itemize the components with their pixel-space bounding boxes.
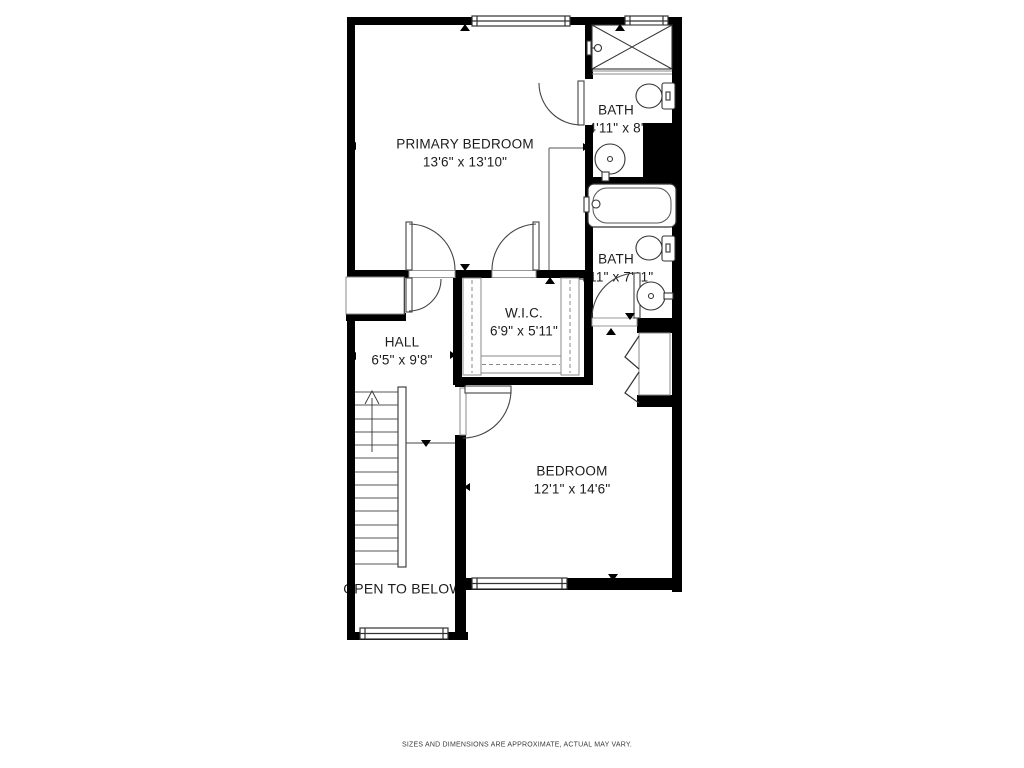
- sink-drain: [649, 294, 654, 299]
- room-name: BATH: [588, 102, 643, 120]
- wall-chase: [643, 123, 680, 177]
- bath-top-label: BATH 4'11" x 8': [588, 102, 643, 137]
- bathtub: [584, 184, 676, 227]
- primary-bedroom-label: PRIMARY BEDROOM 13'6" x 13'10": [396, 136, 534, 171]
- bifold-doors: [625, 336, 639, 403]
- threshold-bath2-door: [592, 318, 637, 326]
- closet-rod-left: [463, 278, 481, 375]
- door-swing-arc: [463, 390, 511, 438]
- floor-plan-drawing: [0, 0, 1024, 768]
- wall-hall-closet-bottom: [346, 313, 406, 321]
- marker-wall-left-hall: [349, 352, 356, 360]
- wic-label: W.I.C. 6'9" x 5'11": [490, 305, 558, 340]
- door-leaf: [406, 222, 412, 270]
- sink-bath2: [637, 282, 673, 310]
- marker-wall-right-bedroom: [672, 483, 678, 491]
- jamb-bedroom-door: [460, 388, 466, 435]
- threshold-hall-door: [409, 271, 455, 278]
- floor-plan-page: PRIMARY BEDROOM 13'6" x 13'10" BATH 4'11…: [0, 0, 1024, 768]
- room-dims: 4'11" x 8': [588, 119, 643, 137]
- wall-wic-bottom: [453, 377, 592, 385]
- window-frame: [472, 578, 567, 589]
- toilet-button: [666, 92, 670, 100]
- room-name: BEDROOM: [534, 463, 611, 481]
- wall-bath1-left-a: [585, 25, 593, 79]
- wall-mid-a: [347, 270, 409, 278]
- closet-interior: [639, 333, 670, 395]
- marker-bath2-leaf: [625, 313, 635, 320]
- hall-label: HALL 6'5" x 9'8": [371, 334, 432, 369]
- tub-outer: [588, 184, 676, 227]
- door-primary-bath: [539, 81, 584, 125]
- room-name: OPEN TO BELOW: [343, 580, 463, 598]
- toilet-tank: [662, 236, 675, 261]
- toilet-tank: [662, 83, 675, 109]
- wall-divider-stub: [455, 377, 466, 387]
- window-bedroom: [472, 578, 567, 589]
- sink-faucet: [664, 293, 673, 299]
- marker-bedroom-window: [608, 574, 618, 581]
- room-dims: 12'1" x 14'6": [534, 480, 611, 498]
- sink-drain: [608, 157, 613, 162]
- shower-x-line: [592, 25, 672, 69]
- marker-niche: [583, 143, 589, 151]
- toilet-button: [666, 244, 670, 252]
- wall-bath-divider: [585, 177, 680, 185]
- thresholds: [409, 271, 637, 436]
- window-frame: [472, 16, 570, 26]
- closet-rod-right: [561, 278, 579, 375]
- door-primary-to-hall: [406, 222, 455, 270]
- shower-x-line: [592, 25, 672, 69]
- shower: [587, 25, 672, 74]
- sink-faucet: [602, 172, 609, 181]
- wall-bath2-bottom: [637, 318, 680, 330]
- shower-valve: [587, 41, 591, 55]
- wall-bedroom-bottom: [455, 578, 680, 590]
- wall-wic-left: [453, 270, 462, 385]
- bedroom-label: BEDROOM 12'1" x 14'6": [534, 463, 611, 498]
- wall-top: [347, 17, 680, 25]
- wall-closet-bottom: [637, 395, 680, 407]
- tub-faucet: [592, 200, 600, 208]
- wall-hall-closet-right: [398, 277, 405, 317]
- door-swing-arc: [409, 279, 441, 311]
- sink-basin: [637, 282, 665, 310]
- room-dims: 6'9" x 5'11": [490, 322, 558, 340]
- room-name: BATH: [579, 251, 654, 269]
- shower-pan: [592, 25, 672, 69]
- sink-bath1: [595, 144, 625, 181]
- bath-middle-label: BATH 4'11" x 7'11": [579, 251, 654, 286]
- door-leaf: [465, 386, 511, 393]
- window-primary-bedroom: [472, 16, 570, 26]
- wall-bottom-left: [347, 632, 468, 640]
- stair-up-arrow: [365, 391, 379, 404]
- marker-bath2-door: [606, 328, 616, 335]
- room-dims: 6'5" x 9'8": [371, 351, 432, 369]
- window-frame: [625, 16, 668, 26]
- stair-railing: [398, 387, 406, 567]
- open-to-below-label: OPEN TO BELOW: [343, 580, 463, 598]
- disclaimer-text: SIZES AND DIMENSIONS ARE APPROXIMATE, AC…: [402, 742, 632, 749]
- wall-left: [347, 17, 355, 640]
- room-name: PRIMARY BEDROOM: [396, 136, 534, 154]
- door-hall-side: [406, 278, 441, 312]
- wall-bath2-left: [584, 278, 593, 385]
- door-swing-arc: [539, 83, 581, 125]
- wall-stair-divider: [455, 435, 466, 640]
- marker-mid-wall: [460, 264, 470, 271]
- door-swing-arc: [409, 224, 455, 270]
- marker-window-top: [460, 24, 470, 31]
- shower-knob: [595, 45, 602, 52]
- marker-wic-top: [545, 277, 555, 284]
- marker-landing: [421, 440, 431, 447]
- stairs: [355, 387, 455, 567]
- window-frame: [360, 628, 448, 639]
- wall-closet-top: [637, 323, 672, 333]
- bedroom-closet: [625, 333, 670, 403]
- marker-wall-right-hall: [450, 351, 456, 359]
- tub-inner: [593, 188, 671, 223]
- tub-valve: [584, 197, 589, 212]
- window-open-below: [360, 628, 448, 639]
- closet-rod-bottom: [481, 356, 561, 373]
- hall-closet-box: [346, 277, 404, 314]
- door-leaf: [533, 222, 539, 270]
- marker-wall-left-bedroom: [464, 483, 470, 491]
- threshold-wic-door: [492, 271, 536, 278]
- marker-wall-left-primary: [349, 142, 356, 150]
- room-dims: 4'11" x 7'11": [579, 268, 654, 286]
- room-name: HALL: [371, 334, 432, 352]
- room-name: W.I.C.: [490, 305, 558, 323]
- marker-window-shower: [615, 24, 625, 31]
- door-leaf: [406, 278, 412, 312]
- door-bedroom: [463, 386, 511, 438]
- window-shower: [625, 16, 668, 26]
- room-dims: 13'6" x 13'10": [396, 153, 534, 171]
- wall-mid-b: [455, 270, 492, 278]
- door-swing-arc: [492, 224, 536, 270]
- sink-basin: [595, 144, 625, 174]
- door-leaf: [578, 81, 584, 125]
- wall-right: [672, 17, 682, 592]
- door-primary-to-wic: [492, 222, 539, 270]
